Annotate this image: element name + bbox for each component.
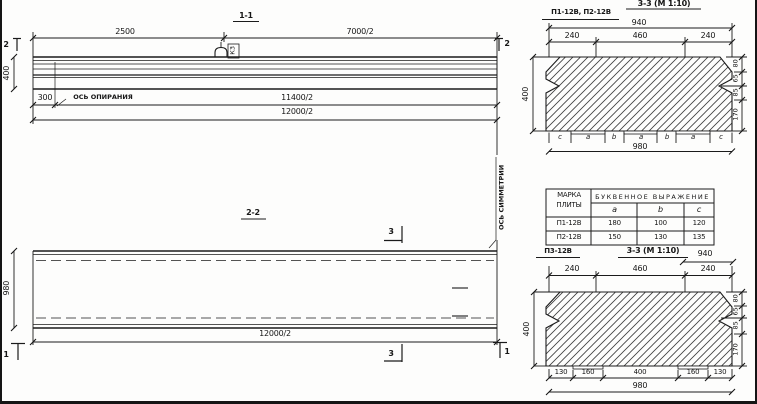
dim-460-top: 460: [626, 32, 654, 40]
dim-130-left: 130: [547, 369, 575, 376]
dim-980-bottom: 980: [627, 382, 653, 390]
table-row1-b: 100: [637, 220, 684, 227]
dim-160-right: 160: [679, 369, 707, 376]
drawing-sheet: 1-1 2 2 2500 7000/2 К3 400 300 ОСЬ ОПИРА…: [0, 0, 757, 404]
dim-300: 300: [34, 94, 56, 102]
segment-letter-3: b: [605, 134, 623, 141]
dim-400-left-bottom: 400: [523, 320, 531, 338]
cut-marker-3-bottom: 3: [386, 350, 396, 358]
cut-marker-2-left: 2: [1, 41, 11, 49]
slab-cross-section-p1-p2: [546, 57, 732, 131]
dim-400-bottom-row: 400: [626, 369, 654, 376]
dim-940-bottom: 940: [692, 250, 718, 258]
dim-940-top: 940: [626, 19, 652, 27]
section-3-3-top-title: 3-3 (М 1:10): [627, 0, 701, 8]
segment-letter-5: b: [658, 134, 676, 141]
dim-980-s22: 980: [3, 279, 11, 297]
section-2-2-linework: [11, 124, 507, 362]
dim-400-s11: 400: [3, 64, 11, 82]
dim-11400-2: 11400/2: [260, 94, 334, 102]
dim-240-right-top: 240: [694, 32, 722, 40]
table-row2-c: 135: [684, 234, 714, 241]
plates-label-p1-p2: П1-12В, П2-12В: [543, 9, 619, 16]
segment-letter-6: a: [684, 134, 702, 141]
section-1-1-title: 1-1: [232, 12, 260, 20]
table-header-mark-line1: МАРКА: [547, 192, 591, 199]
dim-240-left-bottom: 240: [558, 265, 586, 273]
segment-letter-2: a: [579, 134, 597, 141]
table-row2-b: 130: [637, 234, 684, 241]
table-row2-mark: П2-12В: [547, 234, 591, 241]
table-col-b: b: [637, 206, 684, 214]
dim-12000-2-s22: 12000/2: [238, 330, 312, 338]
table-row1-a: 180: [592, 220, 637, 227]
section-3-3-bottom-title: 3-3 (М 1:10): [616, 247, 690, 255]
segment-letter-4: a: [632, 134, 650, 141]
cut-marker-1-left: 1: [1, 351, 11, 359]
dim-980-top: 980: [627, 143, 653, 151]
table-col-a: a: [592, 206, 637, 214]
section-2-2-title: 2-2: [239, 209, 267, 217]
segment-letter-7: c: [712, 134, 730, 141]
dim-7000-2: 7000/2: [290, 28, 430, 36]
dim-80-top: 80: [733, 55, 740, 71]
dim-240-right-bottom: 240: [694, 265, 722, 273]
table-header-expression: БУКВЕННОЕ ВЫРАЖЕНИЕ: [592, 194, 713, 201]
dim-170-top: 170: [733, 105, 740, 123]
symmetry-axis-label: ОСЬ СИММЕТРИИ: [499, 157, 506, 237]
table-col-c: c: [684, 206, 714, 214]
table-row2-a: 150: [592, 234, 637, 241]
table-row1-c: 120: [684, 220, 714, 227]
cut-marker-2-right: 2: [502, 40, 512, 48]
section-1-1-linework: [11, 22, 503, 125]
dim-240-left-top: 240: [558, 32, 586, 40]
dim-160-left: 160: [574, 369, 602, 376]
cut-marker-3-top: 3: [386, 228, 396, 236]
segment-letter-1: c: [551, 134, 569, 141]
dim-460-bottom: 460: [626, 265, 654, 273]
drawing-linework: [0, 0, 757, 404]
lifting-hook-mark: К3: [230, 43, 237, 57]
dim-85-top: 85: [733, 84, 740, 100]
dim-130-right: 130: [706, 369, 734, 376]
slab-cross-section-p3: [546, 292, 732, 366]
dim-12000-2-s11: 12000/2: [260, 108, 334, 116]
table-row1-mark: П1-12В: [547, 220, 591, 227]
cut-marker-1-right: 1: [502, 348, 512, 356]
dim-2500: 2500: [60, 28, 190, 36]
dim-85-bottom: 85: [733, 317, 740, 333]
plate-label-p3: П3-12В: [536, 248, 580, 255]
table-header-mark-line2: ПЛИТЫ: [547, 202, 591, 209]
dim-400-top: 400: [522, 85, 530, 103]
support-axis-label: ОСЬ ОПИРАНИЯ: [68, 94, 138, 101]
dim-170-bottom: 170: [733, 340, 740, 358]
